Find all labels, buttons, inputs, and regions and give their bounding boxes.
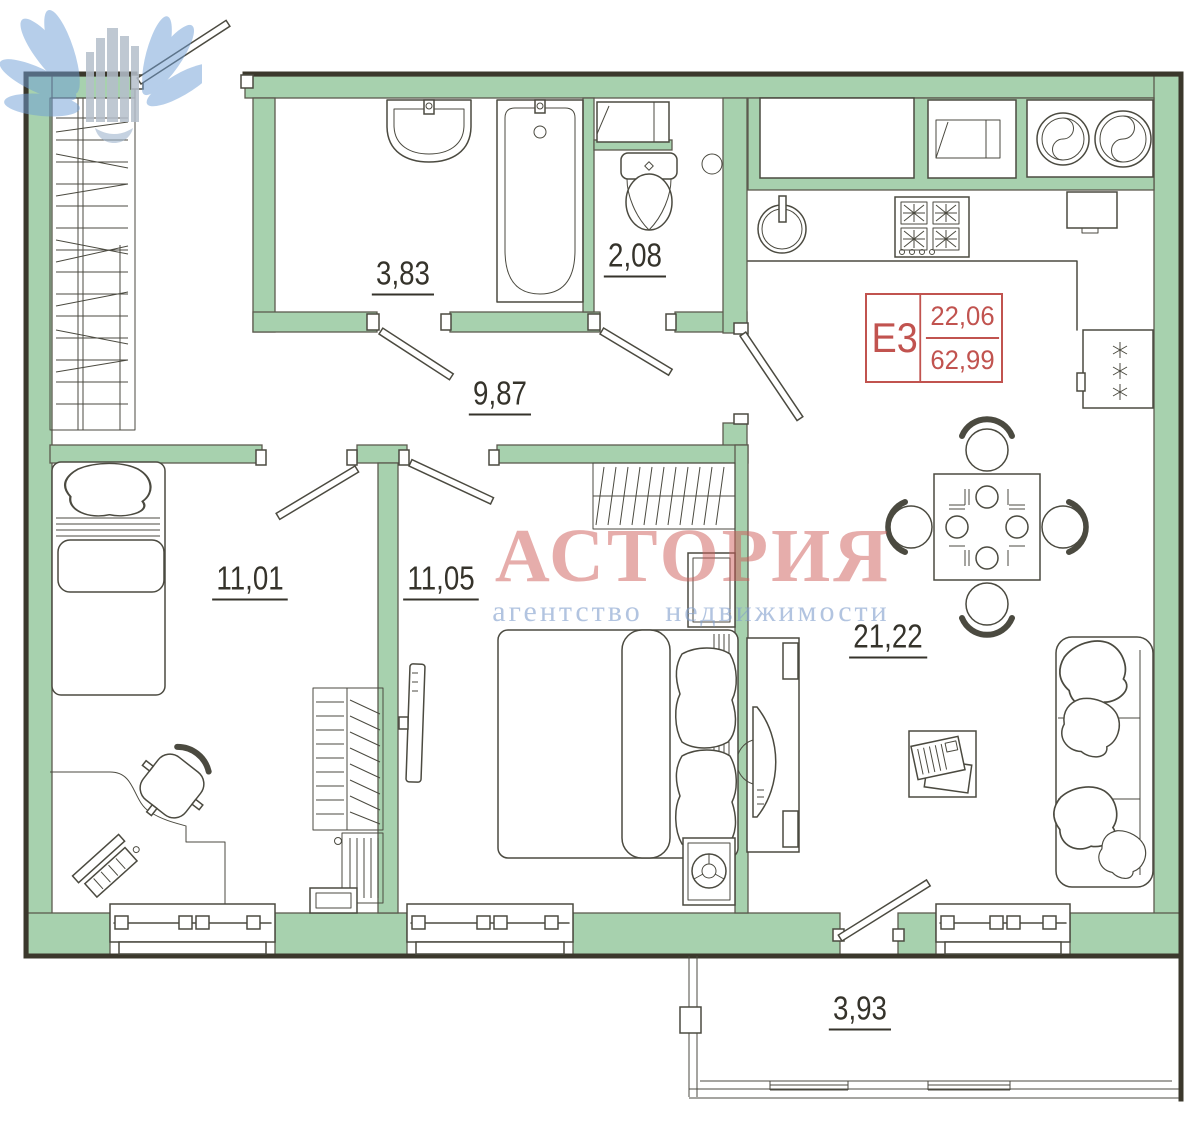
fridge (1077, 330, 1153, 408)
unit-code: Е3 (870, 295, 921, 381)
agency-wings-logo (0, 0, 202, 165)
washing-machine (597, 102, 669, 142)
ventilation-shafts (1027, 100, 1153, 177)
floor-drain (702, 154, 722, 174)
bathroom-door (367, 314, 453, 380)
kitchen-sink (758, 196, 806, 253)
double-bed (498, 630, 738, 858)
toilet-door (588, 314, 676, 375)
balcony-outline (680, 956, 1179, 1098)
bathtub (497, 100, 583, 302)
duct-box (310, 888, 357, 913)
wall-tv (399, 664, 425, 782)
room-area-kitchen-living: 21,22 (849, 620, 927, 659)
unit-info-box: Е3 22,06 62,99 (865, 293, 1003, 383)
floor-plan: АСТОРИЯ агентство недвижимости 3,83 2,08… (0, 0, 1200, 1125)
building-icon (86, 28, 139, 122)
kitchen-niches (760, 98, 1153, 178)
stove (895, 197, 969, 257)
room-area-bedroom-middle: 11,05 (403, 562, 479, 601)
watermark-title: АСТОРИЯ (476, 514, 910, 598)
entry-niche (760, 98, 914, 178)
sofa (1051, 633, 1153, 887)
room-area-balcony: 3,93 (829, 992, 891, 1031)
coffee-table (909, 731, 976, 797)
room-area-bedroom-left: 11,01 (212, 562, 288, 601)
dining-table (888, 419, 1086, 635)
room-area-hallway: 9,87 (469, 377, 531, 416)
kitchen-cabinet-niche (928, 100, 1016, 178)
toilet (621, 153, 677, 230)
wardrobe (313, 688, 383, 830)
watermark-subtitle: агентство недвижимости (476, 595, 906, 629)
bathroom-sink (387, 100, 471, 162)
single-bed (52, 462, 165, 695)
office-chair (121, 732, 225, 837)
bedroom-middle-door (399, 450, 499, 504)
unit-total-area: 62,99 (926, 339, 999, 381)
unit-living-area: 22,06 (926, 295, 999, 339)
wall-cabinet (1067, 192, 1117, 233)
bedroom-left-door (256, 450, 359, 519)
kitchen-door (734, 323, 803, 424)
computer (73, 830, 145, 899)
room-area-bathroom: 3,83 (372, 257, 434, 296)
fan-heater (683, 838, 735, 905)
room-area-toilet: 2,08 (604, 239, 666, 278)
